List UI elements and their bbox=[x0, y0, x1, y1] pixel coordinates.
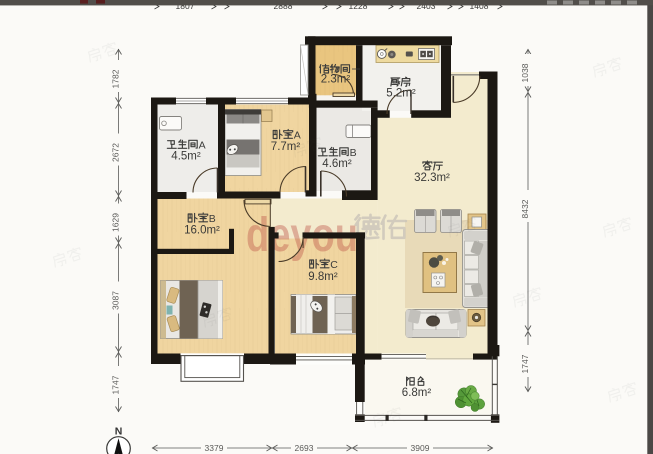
svg-text:8432: 8432 bbox=[520, 199, 530, 218]
svg-text:B: B bbox=[209, 213, 216, 225]
svg-text:2.3m²: 2.3m² bbox=[321, 74, 351, 86]
svg-text:5.2m²: 5.2m² bbox=[386, 88, 416, 100]
svg-text:4.5m²: 4.5m² bbox=[171, 151, 201, 163]
svg-text:N: N bbox=[115, 426, 123, 438]
svg-text:3909: 3909 bbox=[411, 443, 430, 453]
svg-text:32.3m²: 32.3m² bbox=[414, 172, 450, 184]
svg-text:3379: 3379 bbox=[205, 443, 224, 453]
svg-text:7.7m²: 7.7m² bbox=[271, 141, 301, 153]
svg-text:1782: 1782 bbox=[111, 69, 121, 88]
svg-text:4.6m²: 4.6m² bbox=[322, 158, 352, 170]
svg-text:2672: 2672 bbox=[111, 143, 121, 162]
svg-text:1038: 1038 bbox=[520, 63, 530, 82]
svg-text:1629: 1629 bbox=[111, 213, 121, 232]
svg-text:1747: 1747 bbox=[520, 354, 530, 373]
svg-text:6.8m²: 6.8m² bbox=[402, 387, 432, 399]
svg-text:2693: 2693 bbox=[295, 443, 314, 453]
svg-text:9.8m²: 9.8m² bbox=[308, 271, 338, 283]
svg-text:A: A bbox=[294, 130, 301, 142]
svg-text:C: C bbox=[330, 259, 338, 271]
svg-text:3087: 3087 bbox=[111, 291, 121, 310]
svg-text:16.0m²: 16.0m² bbox=[184, 225, 220, 237]
svg-text:1747: 1747 bbox=[111, 375, 121, 394]
